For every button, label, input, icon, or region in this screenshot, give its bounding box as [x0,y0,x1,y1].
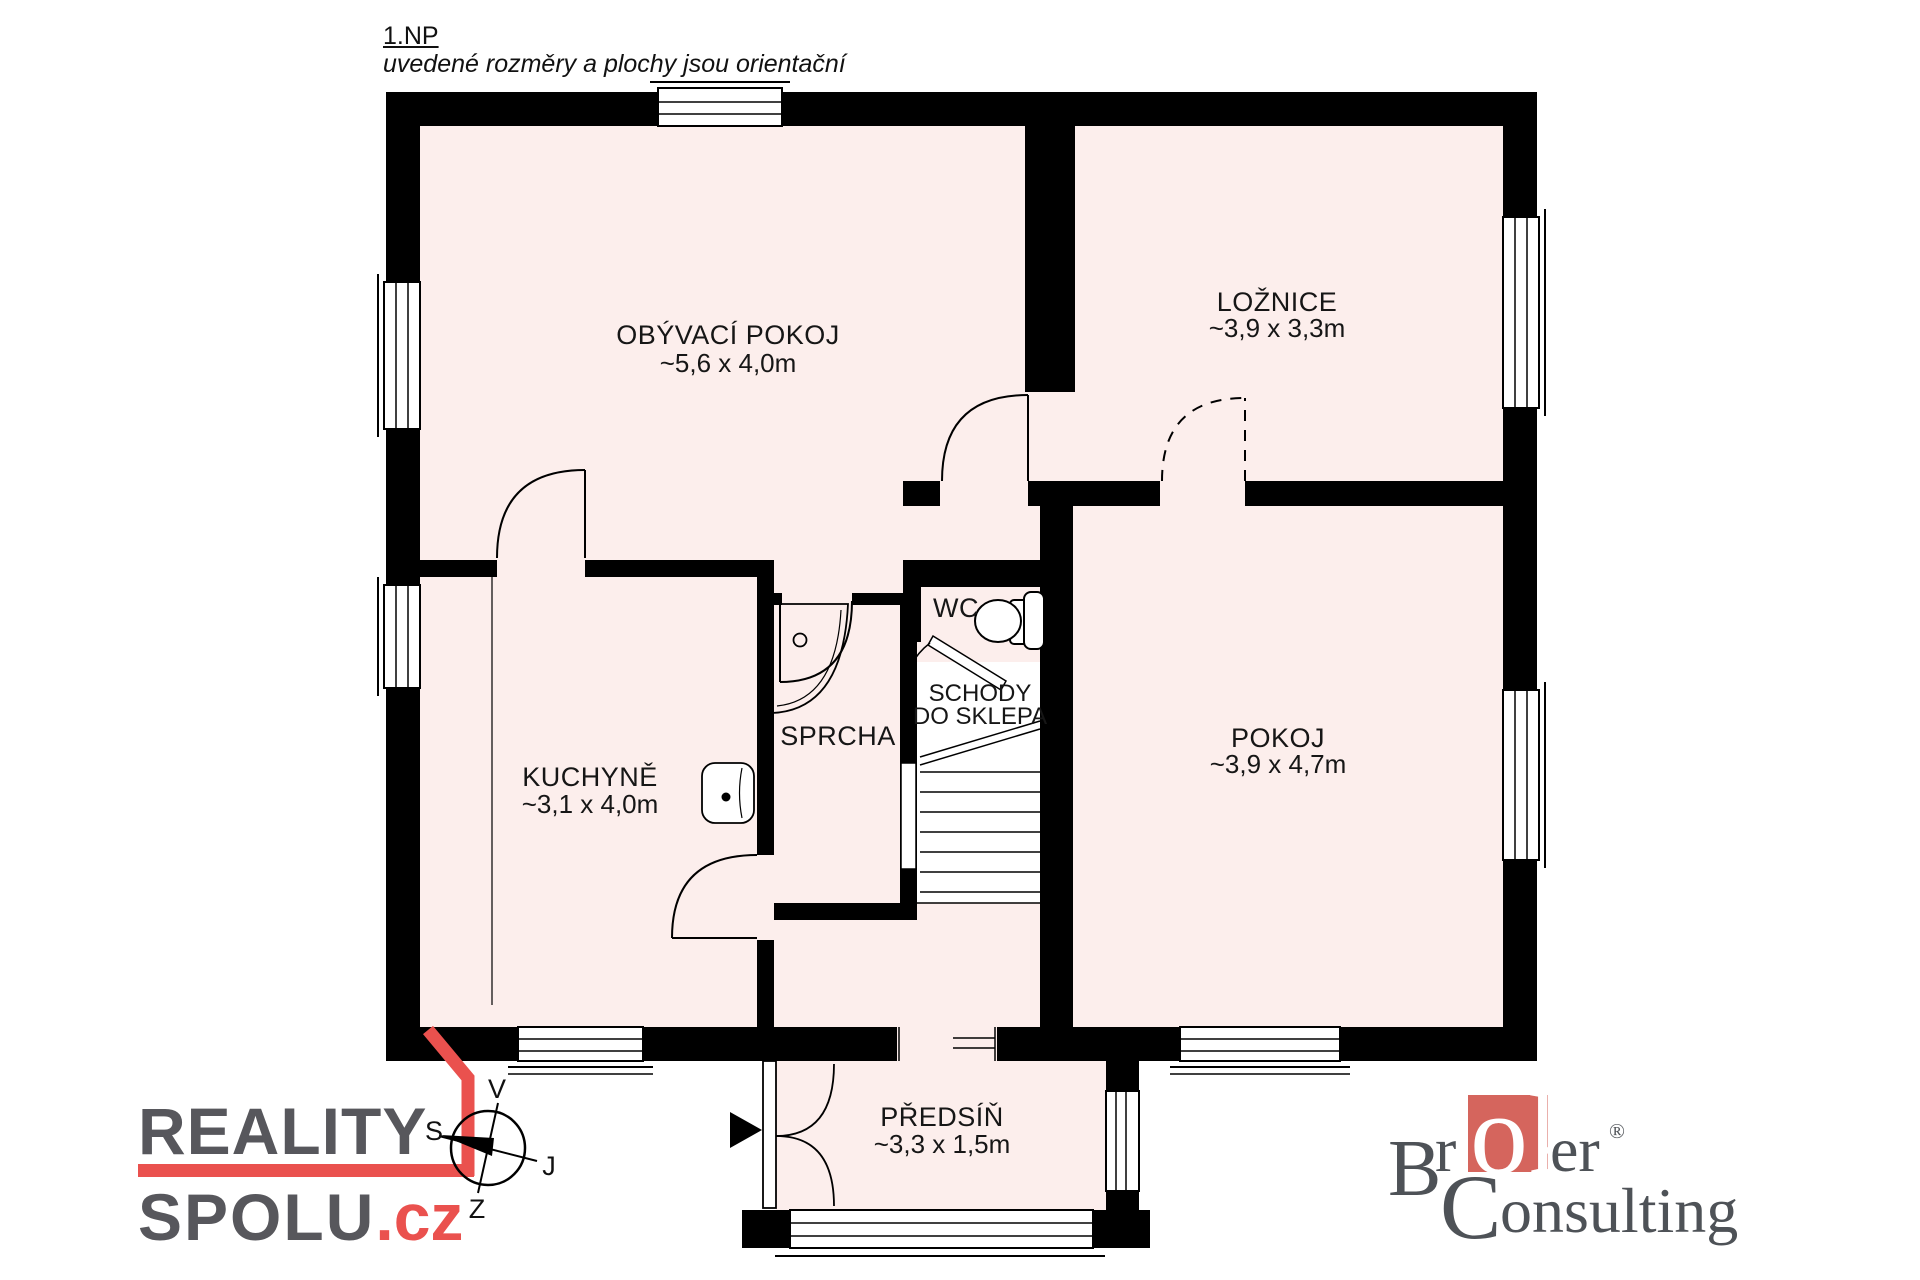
logo-cz-tld: .cz [375,1180,463,1254]
window-living-left [378,274,420,437]
dims-bedroom: ~3,9 x 3,3m [1209,313,1346,343]
dims-living-room: ~5,6 x 4,0m [660,348,797,378]
window-hallway-right [1106,1091,1139,1191]
floor-title: 1.NP [383,22,439,51]
broker-logo-B: B [1388,1129,1441,1209]
label-stairs-2: DO SKLEPA [913,703,1047,730]
window-bedroom-right [1503,209,1545,416]
dims-room: ~3,9 x 4,7m [1210,749,1347,779]
window-hallway-bottom [775,1210,1105,1256]
window-room-right [1503,682,1545,868]
reality-spolu-logo-line2: SPOLU.cz [138,1184,463,1250]
label-wc: WC [933,593,979,623]
window-kitchen-bottom [508,1027,653,1074]
compass-north-label: S [425,1116,443,1146]
dims-hallway: ~3,3 x 1,5m [874,1129,1011,1159]
floor-disclaimer: uvedené rozměry a plochy jsou orientační [383,50,846,79]
broker-logo-registered: ® [1609,1121,1625,1142]
broker-logo-er: er [1550,1118,1600,1182]
kitchen-sink-icon [702,763,754,823]
entrance-arrow-icon [730,1112,762,1148]
compass-south-label: J [542,1151,556,1181]
logo-spolu-text: SPOLU [138,1180,375,1254]
window-kitchen-left [378,577,420,696]
window-living-top [650,82,790,126]
compass-west-label: Z [469,1194,486,1224]
stair-railing [901,763,916,869]
reality-spolu-logo-line1: REALITY [138,1098,427,1164]
dims-kitchen: ~3,1 x 4,0m [522,789,659,819]
label-hallway: PŘEDSÍŇ [880,1101,1004,1132]
label-shower: SPRCHA [780,721,896,751]
compass-east-label: V [488,1074,506,1104]
broker-consulting-logo: B r ok er ® C onsulting [1390,1085,1810,1255]
broker-logo-onsulting: onsulting [1500,1179,1738,1243]
label-living-room: OBÝVACÍ POKOJ [616,320,840,350]
broker-logo-C: C [1440,1161,1501,1253]
window-room-bottom [1170,1027,1350,1074]
label-kitchen: KUCHYNĚ [522,761,658,792]
